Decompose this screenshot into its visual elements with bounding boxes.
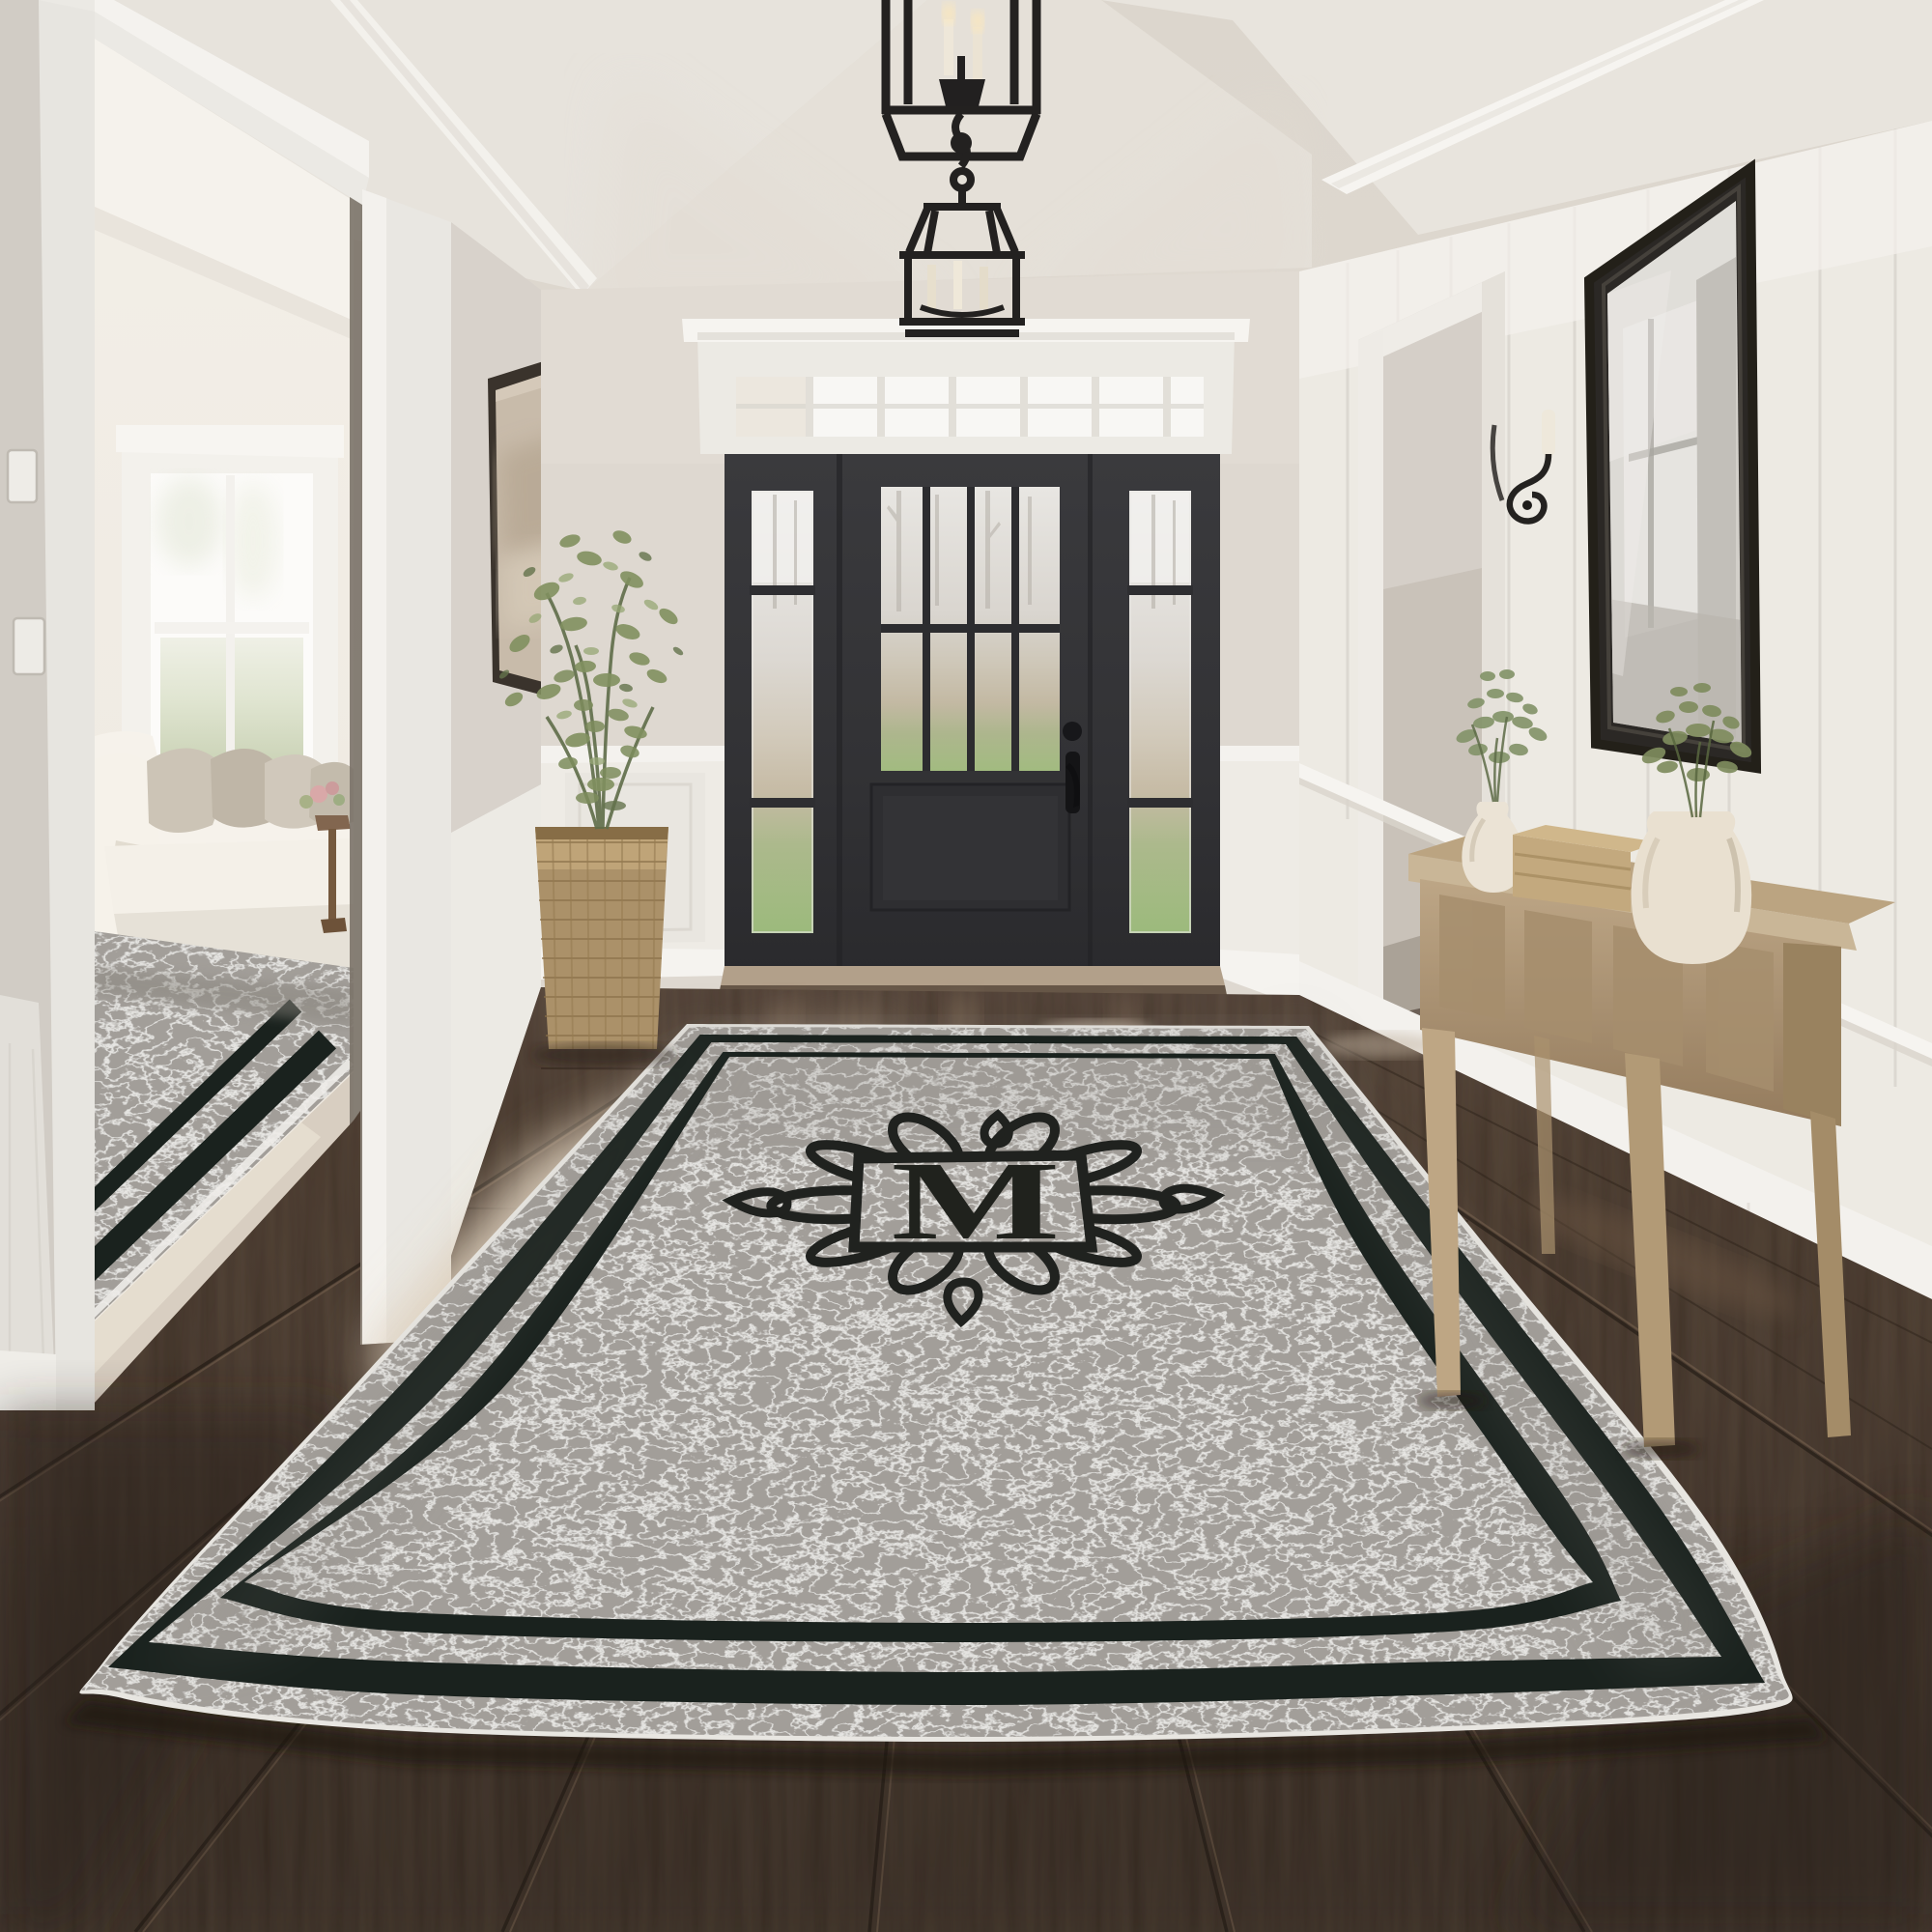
svg-text:M: M bbox=[891, 1139, 1060, 1263]
